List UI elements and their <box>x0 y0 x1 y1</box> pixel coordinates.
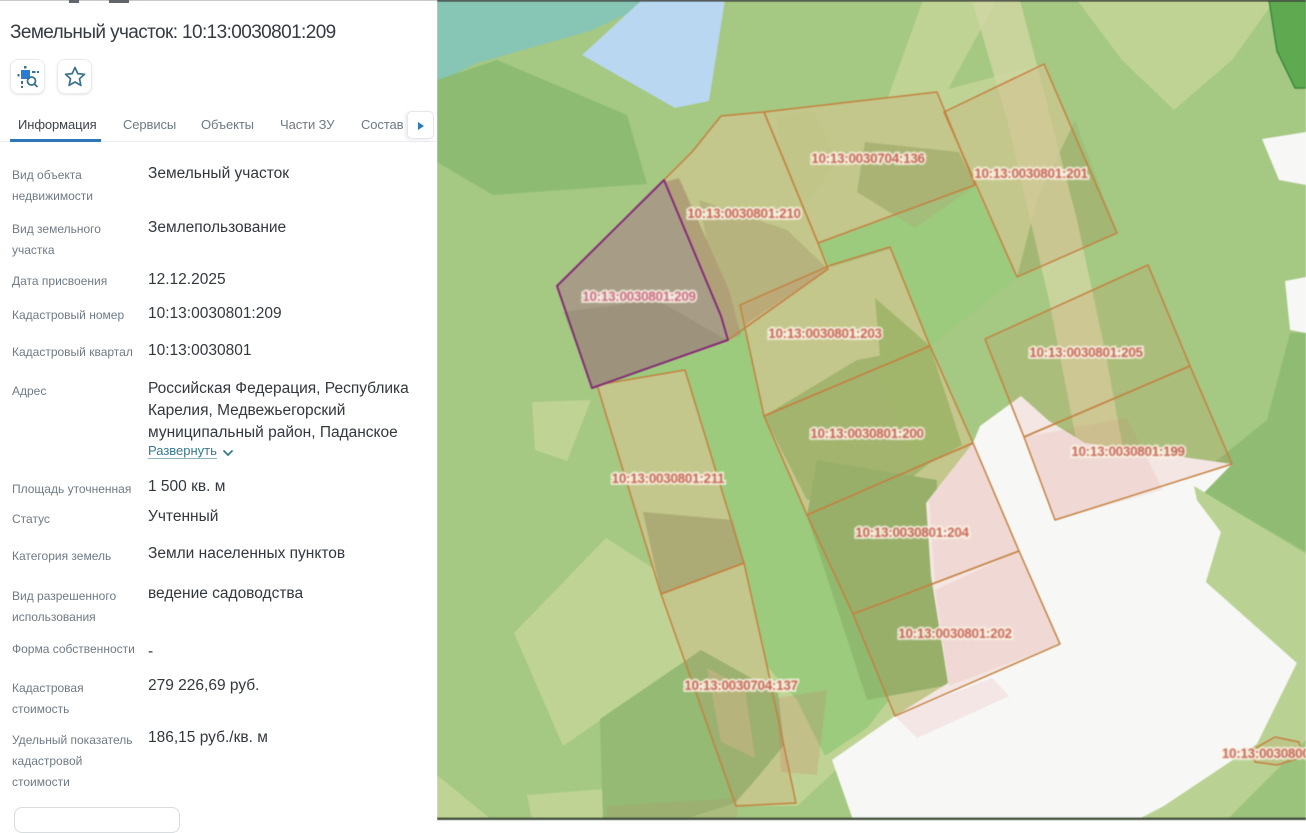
svg-text:10:13:0030801:202: 10:13:0030801:202 <box>898 626 1012 641</box>
svg-text:10:13:0030704:137: 10:13:0030704:137 <box>684 678 798 693</box>
svg-text:10:13:0030801:211: 10:13:0030801:211 <box>612 471 726 486</box>
svg-text:10:13:0030801:204: 10:13:0030801:204 <box>855 525 969 540</box>
svg-text:10:13:0030801:209: 10:13:0030801:209 <box>582 289 696 304</box>
svg-text:10:13:0030801:205: 10:13:0030801:205 <box>1029 345 1143 360</box>
svg-text:10:13:0030801:203: 10:13:0030801:203 <box>768 326 882 341</box>
svg-text:10:13:0030704:136: 10:13:0030704:136 <box>811 151 925 166</box>
svg-text:10:13:0030801:200: 10:13:0030801:200 <box>810 426 924 441</box>
svg-text:10:13:0030801:210: 10:13:0030801:210 <box>687 206 801 221</box>
svg-text:10:13:0030800:12: 10:13:0030800:12 <box>1222 746 1306 761</box>
svg-text:10:13:0030801:201: 10:13:0030801:201 <box>974 166 1088 181</box>
svg-text:10:13:0030801:199: 10:13:0030801:199 <box>1071 444 1185 459</box>
